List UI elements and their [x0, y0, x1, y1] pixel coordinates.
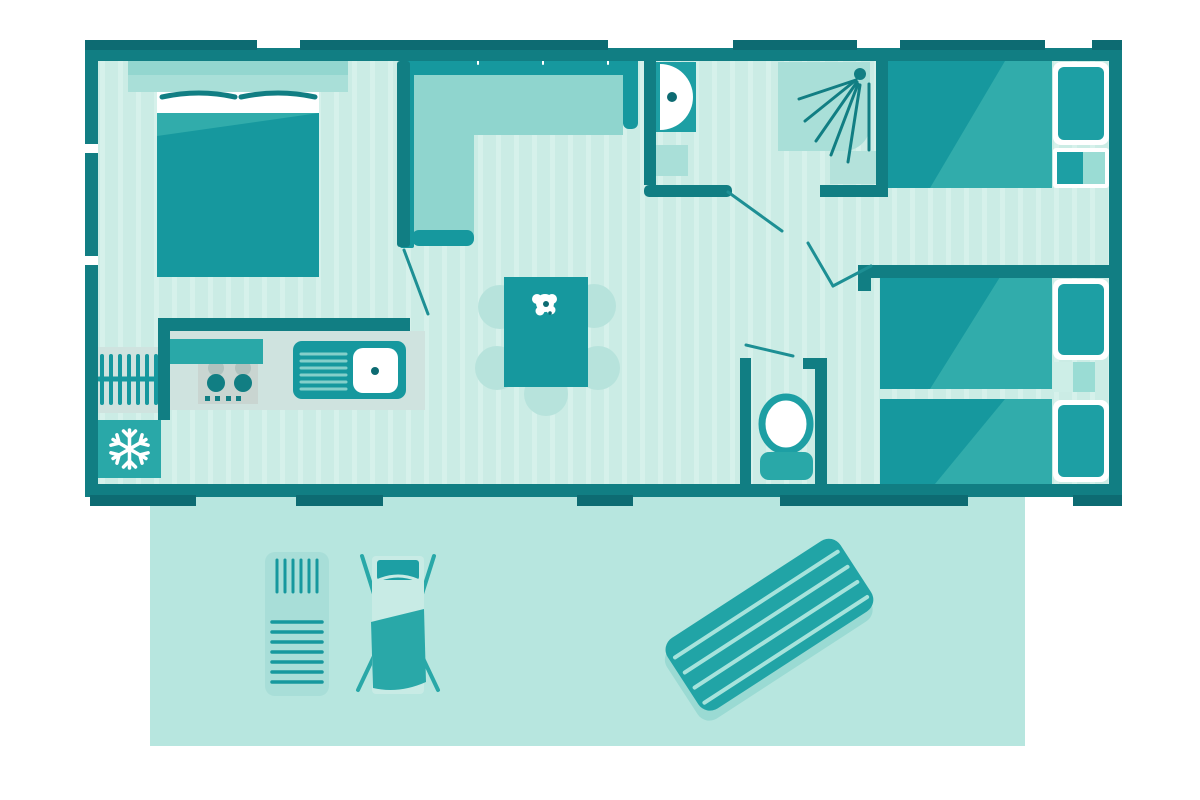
wall-west: [85, 48, 98, 497]
wall-kitchen-vertical: [158, 318, 170, 420]
pillow-icon: [1058, 284, 1104, 355]
wall-wc-left: [740, 358, 751, 484]
sun-lounger-icon: [265, 552, 329, 696]
washbasin-drain-dot: [667, 92, 677, 102]
pillow-icon: [1058, 67, 1104, 140]
deck-chair-blanket: [371, 609, 426, 690]
master-bedroom: [128, 61, 348, 277]
floor-plan-svg: [0, 0, 1200, 800]
sofa-armrest-bottom: [412, 230, 474, 246]
faucet-dot: [371, 367, 379, 375]
wall-east: [1109, 48, 1122, 497]
burner-icon: [234, 374, 252, 392]
wall-wc-stub: [803, 358, 827, 369]
burner-icon: [207, 374, 225, 392]
wall-bedroom-separator: [858, 265, 1109, 278]
wall-wc-right: [815, 358, 827, 484]
bedroom-right-bottom: [880, 277, 1109, 484]
wall-shower-right: [876, 61, 888, 197]
toilet-bowl-icon: [762, 397, 810, 451]
nightstand: [1053, 148, 1109, 188]
shower-step: [830, 151, 877, 184]
floor-plan-page: [0, 0, 1200, 800]
headboard-shelf-top: [128, 61, 348, 75]
wall-bathroom-bottom-left: [644, 185, 732, 197]
wc: [760, 397, 813, 480]
double-bed: [157, 113, 319, 277]
pillow-icon: [1058, 405, 1104, 477]
sofa-armrest-right: [623, 61, 638, 129]
wall-shower-bottom: [820, 185, 888, 197]
mobile-home: [85, 40, 1122, 506]
wall-bathroom-left: [644, 61, 656, 185]
window-tabs-top: [85, 40, 1122, 50]
wall-master-bedroom: [397, 61, 410, 247]
kitchen-cabinet: [168, 339, 263, 364]
bedroom-right-top: [888, 61, 1109, 188]
dining-table: [504, 277, 588, 387]
bath-shelf: [655, 145, 688, 176]
toilet-tank: [760, 452, 813, 480]
terrace: [150, 490, 1025, 746]
wall-kitchen-horizontal: [158, 318, 410, 331]
nightstand: [1053, 362, 1095, 392]
